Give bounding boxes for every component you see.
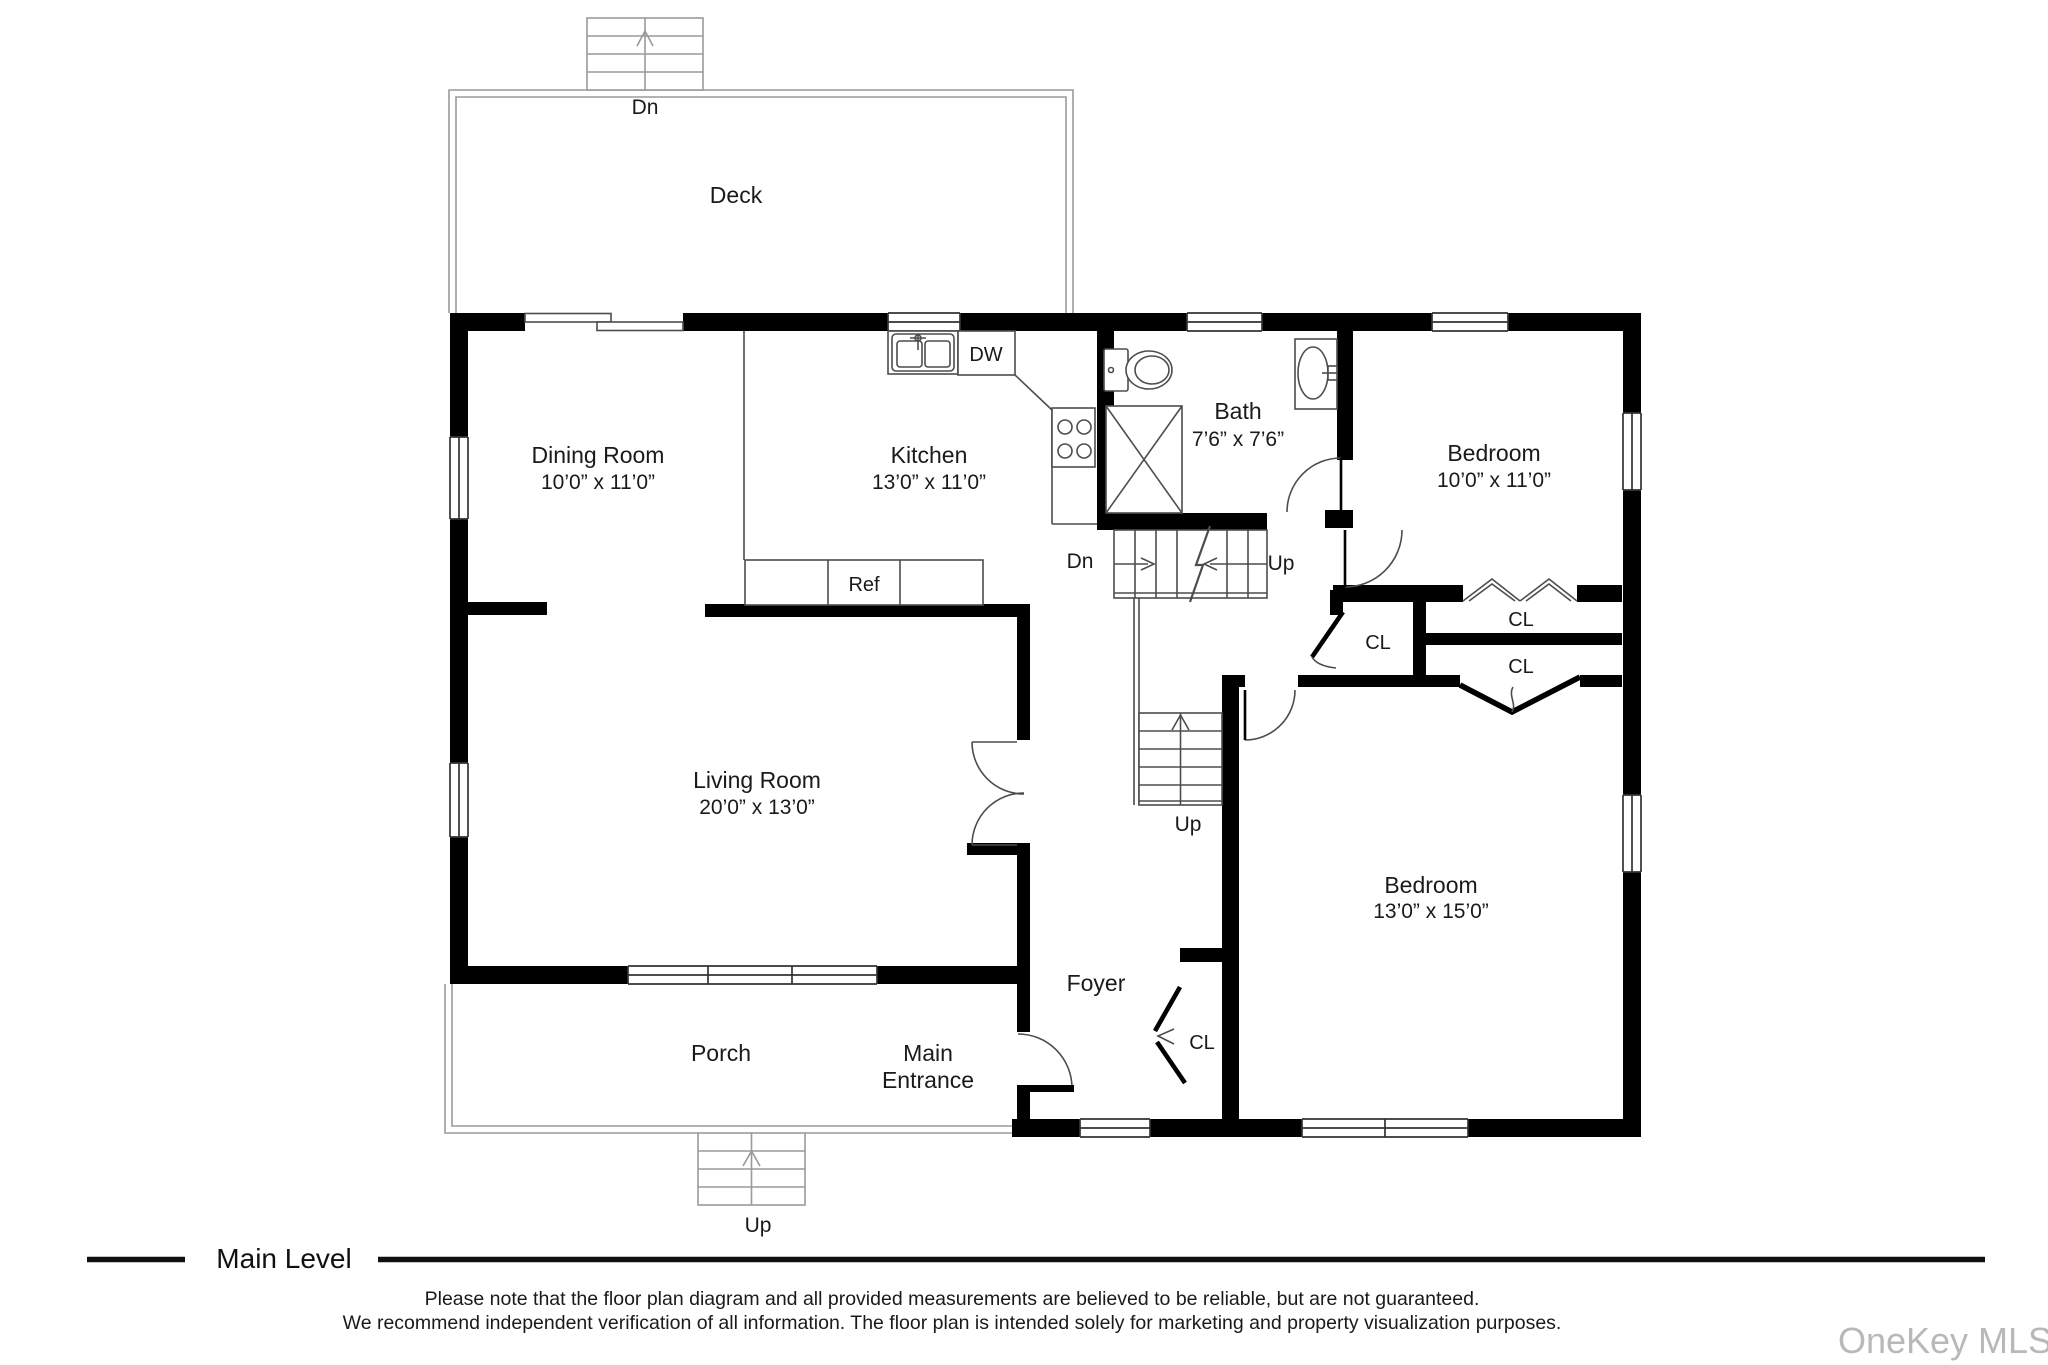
- room-dims-bath: 7’6” x 7’6”: [1192, 428, 1284, 451]
- disclaimer-line1: Please note that the floor plan diagram …: [425, 1288, 1480, 1310]
- deck-stairs-label: Dn: [632, 96, 659, 119]
- stove-icon: [1052, 408, 1095, 467]
- bedroom1-door: [1345, 530, 1402, 587]
- french-doors: [972, 742, 1024, 845]
- main-entrance-label-line1: Main: [903, 1040, 953, 1066]
- bedroom2-door: [1245, 690, 1295, 740]
- room-label-dining: Dining Room: [532, 442, 665, 468]
- bath-sink-icon: [1295, 339, 1337, 409]
- main-stairs-up-label: Up: [1268, 552, 1295, 575]
- room-label-foyer: Foyer: [1067, 970, 1126, 996]
- closet-label-lower: CL: [1508, 656, 1534, 678]
- room-dims-kitchen: 13’0” x 11’0”: [872, 471, 986, 494]
- hall-stairs: [1139, 713, 1222, 805]
- level-title: Main Level: [216, 1243, 351, 1274]
- hall-stairs-up-label: Up: [1175, 813, 1202, 836]
- sliding-door: [525, 314, 683, 331]
- main-entrance-label-line2: Entrance: [882, 1067, 974, 1093]
- toilet-icon: [1104, 349, 1172, 391]
- room-label-living: Living Room: [693, 767, 821, 793]
- watermark: OneKey MLS: [1838, 1320, 2048, 1361]
- closet-label-upper: CL: [1508, 609, 1534, 631]
- main-stairs: [1114, 526, 1267, 602]
- floor-plan-drawing: Deck Dn Dining Room 10’0” x 11’0” Kitche…: [0, 0, 2048, 1365]
- foyer-closet-door: [1155, 987, 1185, 1083]
- room-dims-bedroom1: 10’0” x 11’0”: [1437, 469, 1551, 492]
- room-dims-bedroom2: 13’0” x 15’0”: [1373, 900, 1489, 923]
- room-label-bedroom2: Bedroom: [1384, 872, 1477, 898]
- disclaimer-line2: We recommend independent verification of…: [343, 1312, 1562, 1334]
- exterior-walls: [450, 313, 1641, 1137]
- main-stairs-down-label: Dn: [1067, 550, 1094, 573]
- closet-label-hall: CL: [1365, 632, 1391, 654]
- closet-label-foyer: CL: [1189, 1032, 1215, 1054]
- porch-stairs-up-label: Up: [745, 1214, 772, 1237]
- room-label-kitchen: Kitchen: [891, 442, 968, 468]
- room-label-bedroom1: Bedroom: [1447, 440, 1540, 466]
- room-dims-dining: 10’0” x 11’0”: [541, 471, 655, 494]
- windows: [450, 313, 1641, 1137]
- deck-stairs: [587, 18, 703, 90]
- floor-plan-canvas: Deck Dn Dining Room 10’0” x 11’0” Kitche…: [0, 0, 2048, 1365]
- lower-closet-door: [1460, 677, 1580, 712]
- refrigerator-label: Ref: [848, 574, 880, 596]
- bath-door: [1287, 458, 1341, 512]
- dishwasher-label: DW: [969, 344, 1002, 366]
- hall-closet-door: [1312, 612, 1343, 668]
- main-entrance-door: [1017, 1034, 1074, 1092]
- room-dims-living: 20’0” x 13’0”: [699, 796, 815, 819]
- shower-icon: [1106, 406, 1182, 513]
- room-label-porch: Porch: [691, 1040, 751, 1066]
- upper-closet-bifold-door: [1463, 579, 1577, 601]
- kitchen-sink-icon: [892, 334, 954, 371]
- porch-stairs: [698, 1133, 805, 1205]
- room-label-deck: Deck: [710, 182, 763, 208]
- room-label-bath: Bath: [1214, 398, 1261, 424]
